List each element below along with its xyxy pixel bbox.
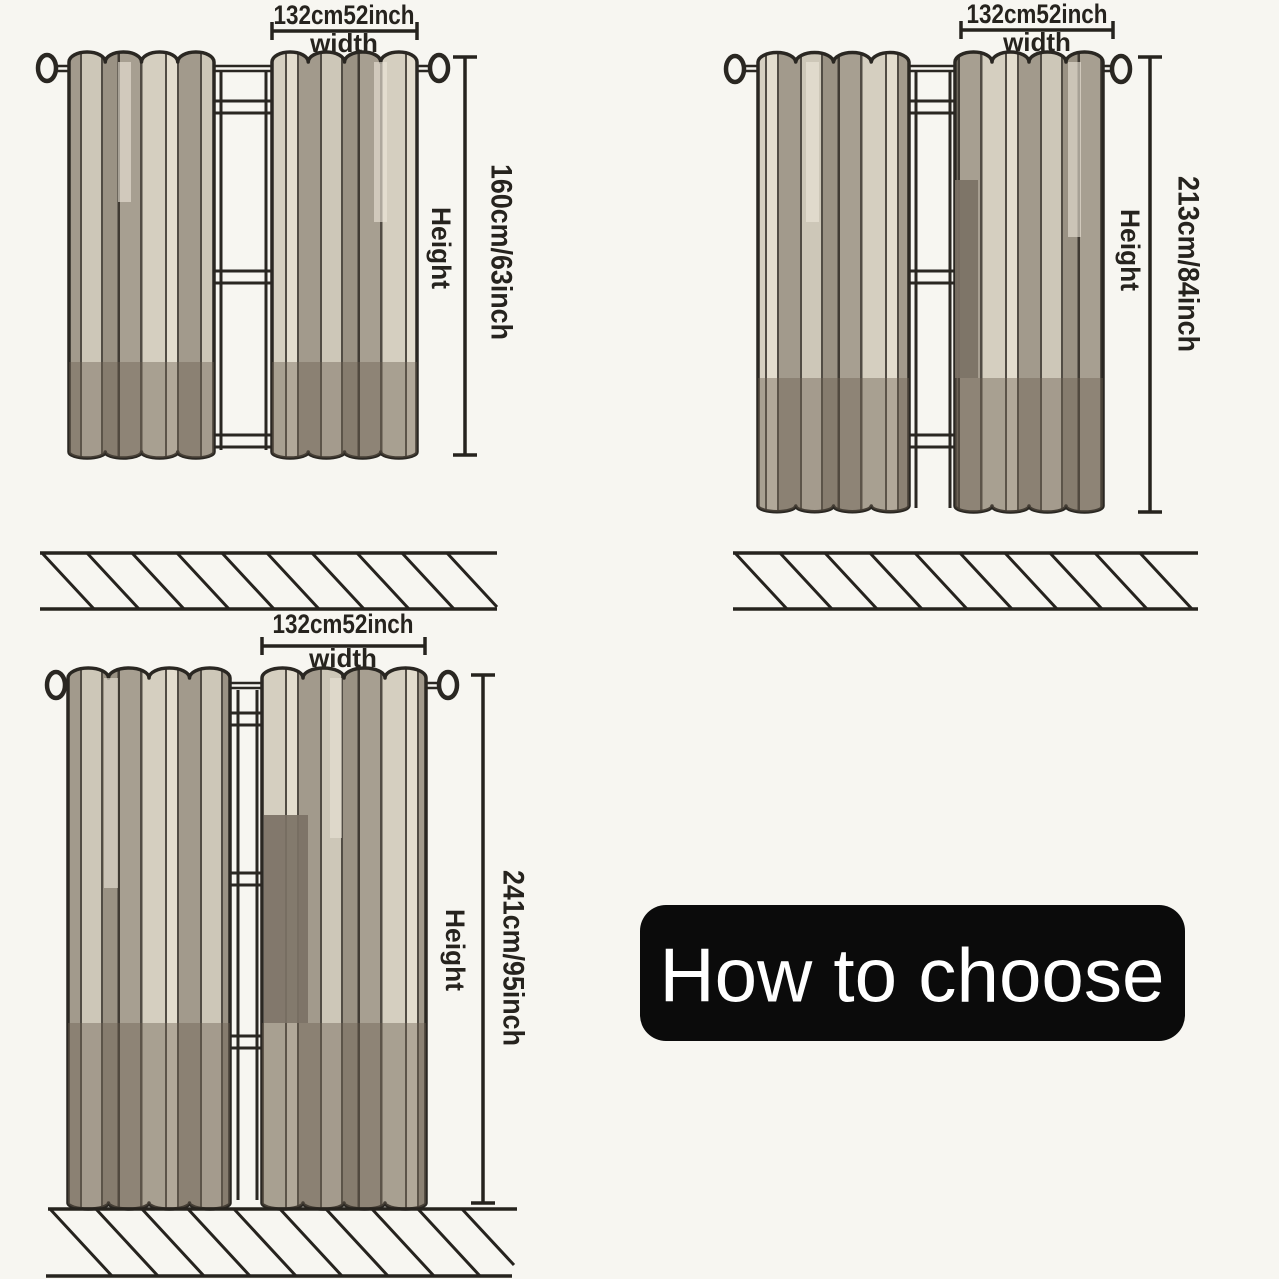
fabric-shadow-stripe xyxy=(264,815,308,1023)
curtain-panel-right xyxy=(262,668,426,1213)
fabric-highlight-stripe xyxy=(330,678,342,838)
window-frame xyxy=(212,72,274,450)
floor-hatch xyxy=(46,1209,517,1276)
curtain-panel-right xyxy=(955,52,1103,518)
rod-finial-right xyxy=(439,672,457,698)
rod-finial-left xyxy=(47,672,65,698)
fabric-highlight-stripe xyxy=(374,62,387,222)
curtain-bottom-band xyxy=(68,1023,230,1213)
width-value-label: 132cm52inch xyxy=(273,609,414,639)
diagram-curtain-95inch: 132cm52inch width xyxy=(46,609,530,1276)
height-word-label: Height xyxy=(440,909,470,991)
curtain-bottom-band xyxy=(758,378,909,518)
curtain-panel-right xyxy=(272,52,417,462)
width-value-label: 132cm52inch xyxy=(967,0,1108,29)
diagram-curtain-63inch: 132cm52inch width xyxy=(38,0,518,609)
curtain-bottom-band xyxy=(69,362,214,462)
window-frame xyxy=(907,72,958,508)
height-value-label: 241cm/95inch xyxy=(497,870,530,1046)
curtain-panel-left xyxy=(69,52,214,462)
curtain-size-guide-graphic: 132cm52inch width xyxy=(0,0,1279,1279)
fabric-highlight-stripe xyxy=(104,678,118,888)
height-value-label: 160cm/63inch xyxy=(485,164,518,340)
curtain-panel-left xyxy=(68,668,230,1213)
curtain-size-guide-image: 132cm52inch width xyxy=(0,0,1279,1279)
height-value-label: 213cm/84inch xyxy=(1172,176,1205,352)
height-word-label: Height xyxy=(1115,209,1145,291)
diagram-curtain-84inch: 132cm52inch width xyxy=(726,0,1205,609)
curtain-bottom-band xyxy=(272,362,417,462)
curtain-bottom-band xyxy=(955,378,1103,518)
fabric-highlight-stripe xyxy=(118,62,131,202)
banner-label: How to choose xyxy=(660,934,1165,1019)
fabric-highlight-stripe xyxy=(806,62,819,222)
rod-finial-left xyxy=(726,56,744,82)
floor-hatch xyxy=(40,553,497,609)
floor-hatch xyxy=(733,553,1198,609)
height-word-label: Height xyxy=(426,207,456,289)
rod-finial-left xyxy=(38,55,56,81)
fabric-highlight-stripe xyxy=(1068,62,1081,237)
how-to-choose-banner: How to choose xyxy=(640,905,1185,1041)
curtain-panel-left xyxy=(758,53,909,518)
height-dimension xyxy=(471,675,495,1203)
width-value-label: 132cm52inch xyxy=(274,0,415,30)
rod-finial-right xyxy=(1112,56,1130,82)
curtain-bottom-band xyxy=(262,1023,426,1213)
fabric-shadow-stripe xyxy=(955,180,978,378)
rod-finial-right xyxy=(430,55,448,81)
